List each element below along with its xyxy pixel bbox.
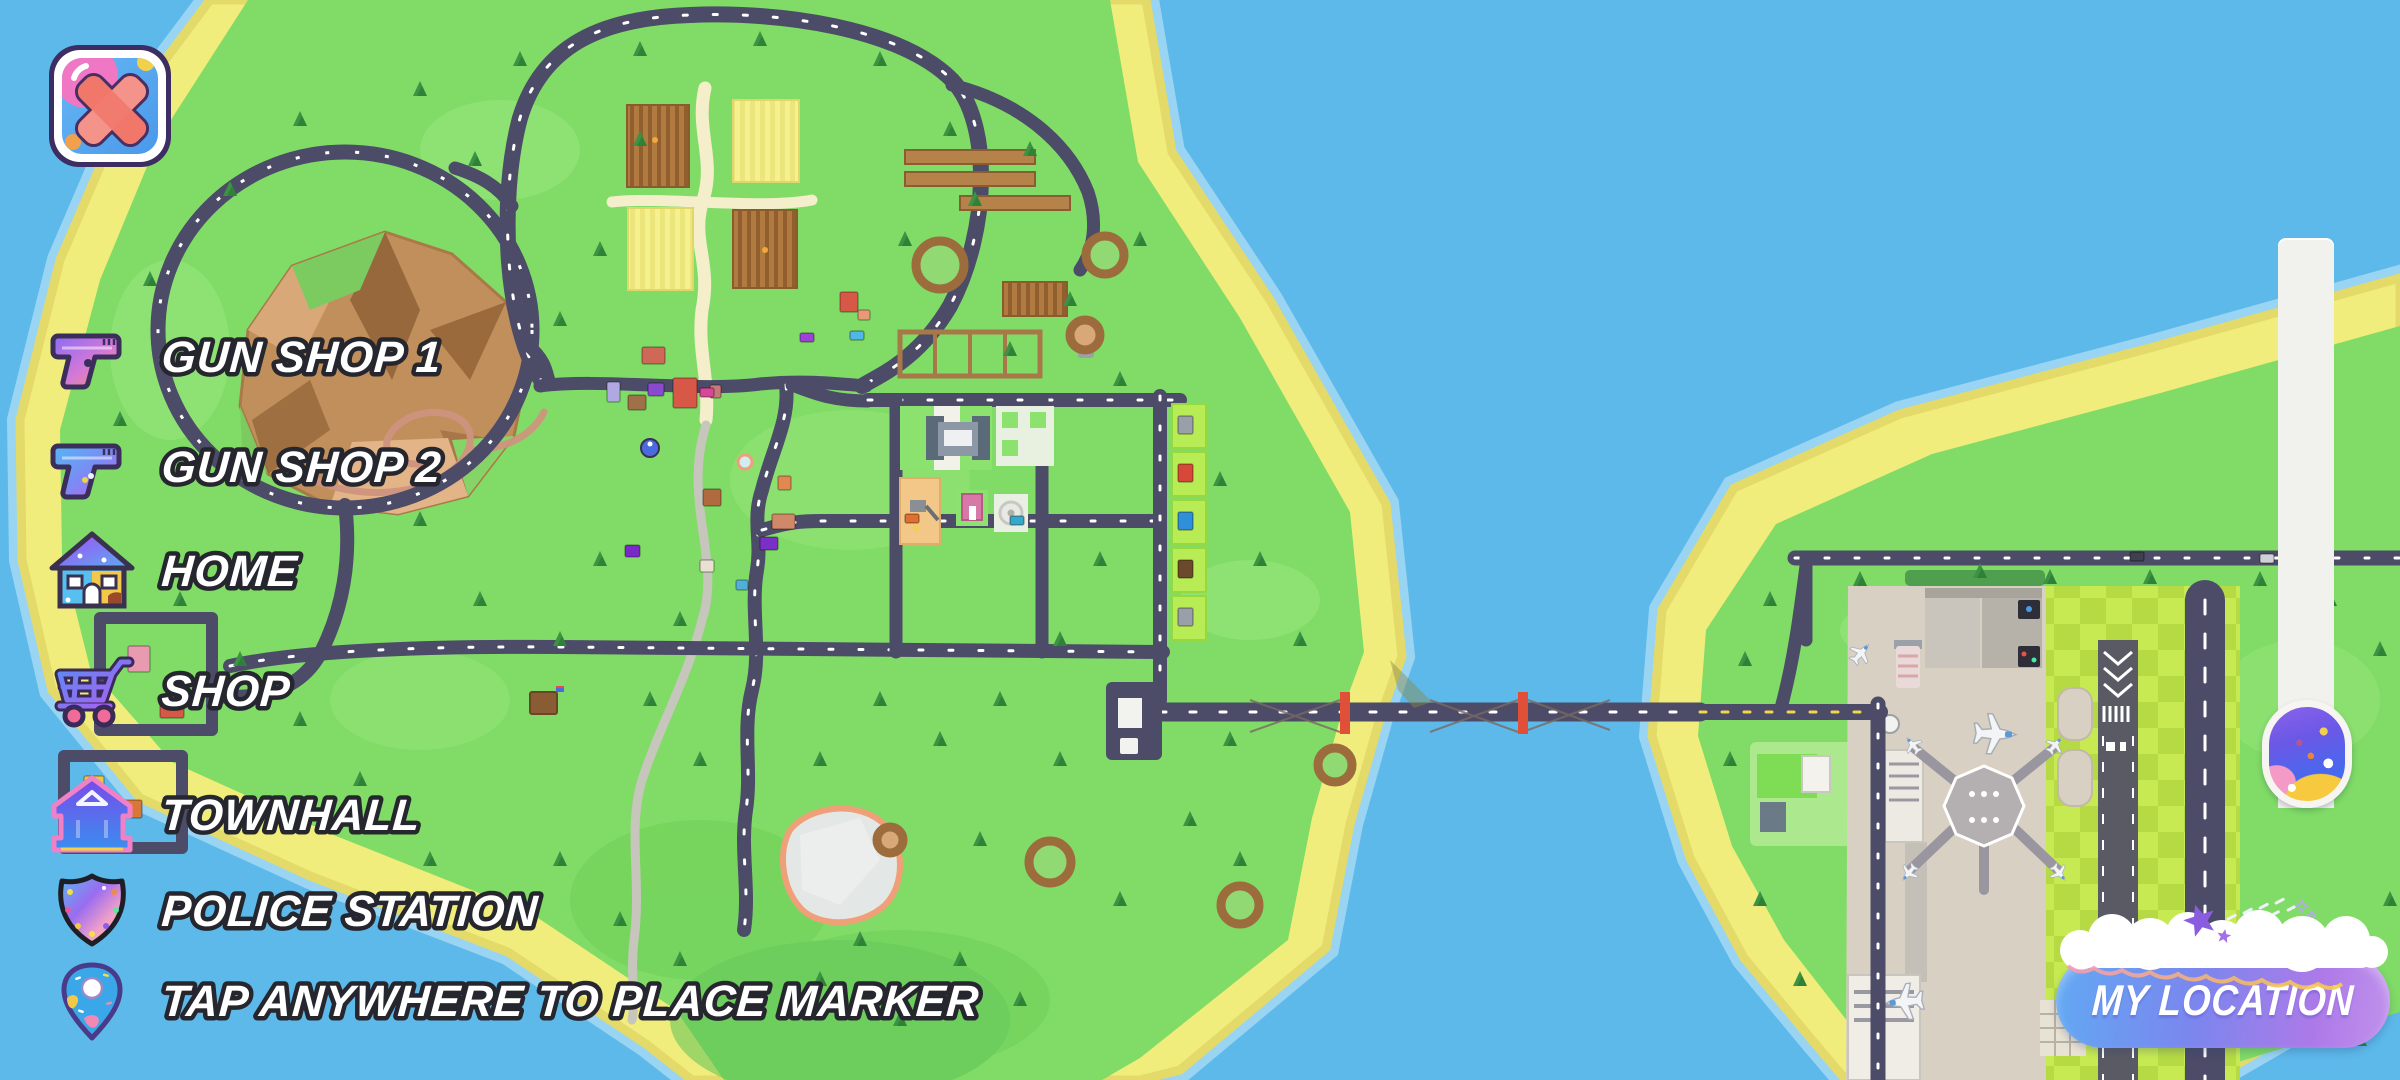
my-location: MY LOCATION: [2050, 896, 2396, 1058]
market-stalls: [1172, 404, 1206, 640]
close-button[interactable]: [48, 44, 172, 168]
game-map[interactable]: [0, 0, 2400, 1080]
map-screen: GUN SHOP 1 GUN SHOP 2: [0, 0, 2400, 1080]
map-scrollbar-thumb[interactable]: [2262, 700, 2352, 808]
cloud-decoration: [2054, 898, 2392, 984]
